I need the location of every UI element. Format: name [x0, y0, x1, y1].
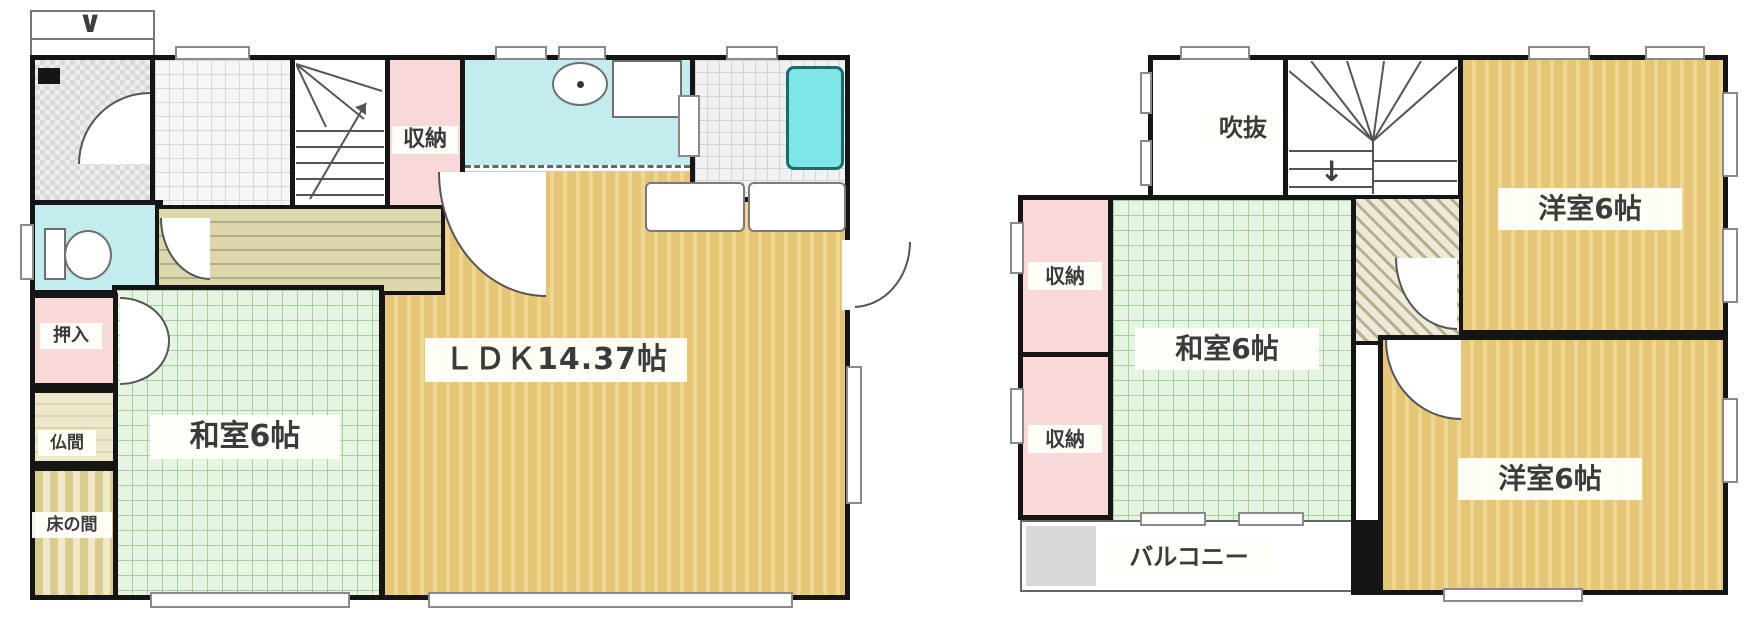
- label-void: 吹抜: [1205, 112, 1281, 144]
- room-hall: [150, 55, 295, 217]
- window: [558, 46, 606, 60]
- kitchen-counter-left: [645, 182, 745, 232]
- label-western-top: 洋室6帖: [1498, 188, 1682, 230]
- kitchen-counter-right: [748, 182, 846, 232]
- label-storage-2f-upper: 収納: [1028, 262, 1102, 290]
- window: [1443, 588, 1583, 602]
- window: [175, 46, 250, 60]
- window: [1140, 72, 1152, 114]
- label-washitsu-2f: 和室6帖: [1135, 328, 1319, 370]
- washroom-ldk-partition: [465, 165, 690, 171]
- washer-pan: [612, 60, 682, 118]
- floor-plan: ∨: [0, 0, 1753, 640]
- label-oshiire: 押入: [40, 323, 102, 349]
- toilet-tank: [44, 228, 66, 280]
- ldk-side-door-arc: [853, 242, 911, 308]
- label-tokonoma: 床の間: [32, 512, 112, 538]
- stairs-1f-treads: [296, 61, 384, 204]
- label-storage-1f: 収納: [392, 126, 458, 154]
- bathroom-door: [678, 95, 700, 157]
- label-western-bottom: 洋室6帖: [1458, 458, 1642, 500]
- stairs-2f-treads: [1289, 61, 1457, 194]
- window: [1238, 512, 1304, 526]
- window: [1140, 140, 1152, 186]
- window: [1645, 46, 1705, 60]
- window: [1722, 398, 1738, 483]
- window: [150, 592, 350, 608]
- entrance-mark: [38, 68, 60, 84]
- washbasin-drain: [577, 81, 584, 88]
- label-storage-2f-lower: 収納: [1028, 425, 1102, 453]
- window: [1140, 512, 1206, 526]
- window: [1010, 388, 1024, 444]
- window: [1722, 228, 1738, 303]
- label-balcony: バルコニー: [1105, 540, 1273, 574]
- window: [1010, 222, 1024, 274]
- window: [495, 46, 547, 60]
- label-washitsu-1f: 和室6帖: [150, 415, 340, 459]
- window: [1722, 92, 1738, 177]
- wall-segment: [1351, 520, 1381, 595]
- entry-arrow-icon: ∨: [78, 8, 102, 38]
- label-ldk: ＬＤＫ14.37帖: [425, 338, 687, 382]
- window: [1528, 46, 1590, 60]
- window: [428, 592, 793, 608]
- window: [726, 46, 778, 60]
- window: [20, 224, 34, 280]
- toilet-bowl-icon: [64, 230, 112, 280]
- bathtub-icon: [786, 66, 844, 170]
- window: [846, 366, 862, 504]
- window: [1180, 46, 1250, 60]
- stairs-down-arrow-icon: ↓: [1320, 158, 1343, 186]
- ldk-side-door-gap: [842, 240, 855, 310]
- label-butsuma: 仏間: [38, 430, 96, 456]
- balcony-gray-block: [1026, 526, 1096, 586]
